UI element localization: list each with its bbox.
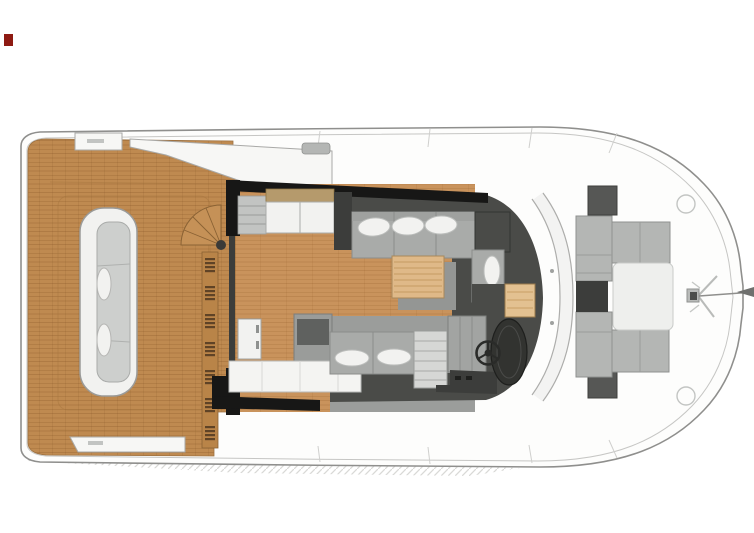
bench-bolster <box>97 268 111 300</box>
platform-handle <box>88 441 103 445</box>
cockpit-bench <box>80 208 137 396</box>
aft-facing-bench <box>330 332 417 374</box>
helm-seat <box>491 319 527 385</box>
tall-cabinet <box>334 192 352 250</box>
starboard-stairs <box>414 331 447 388</box>
island-top <box>297 319 329 345</box>
radar-arch-foot <box>302 143 330 154</box>
salon-sofa <box>352 212 477 258</box>
foredeck-window <box>576 281 608 312</box>
corner-cabinet <box>475 212 510 252</box>
galley-counter-top <box>266 189 334 202</box>
bench-pillow <box>335 350 369 366</box>
locker-handle <box>87 139 104 143</box>
bench-bolster <box>97 324 111 356</box>
bench-pillow <box>377 349 411 365</box>
stern-step-platform <box>70 437 185 452</box>
bench-seat <box>97 222 130 382</box>
staircase-post <box>216 240 226 250</box>
coffee-table <box>392 256 444 298</box>
chaise-pillow <box>484 256 500 286</box>
bow-sunpad <box>613 263 673 330</box>
red-marker <box>4 34 13 46</box>
yacht-floor-plan <box>0 0 754 533</box>
slatted-steps <box>202 252 218 448</box>
deck-hatch-top <box>588 186 617 215</box>
sliding-door-track <box>229 236 235 368</box>
yacht-floor-plan-canvas <box>0 0 754 533</box>
